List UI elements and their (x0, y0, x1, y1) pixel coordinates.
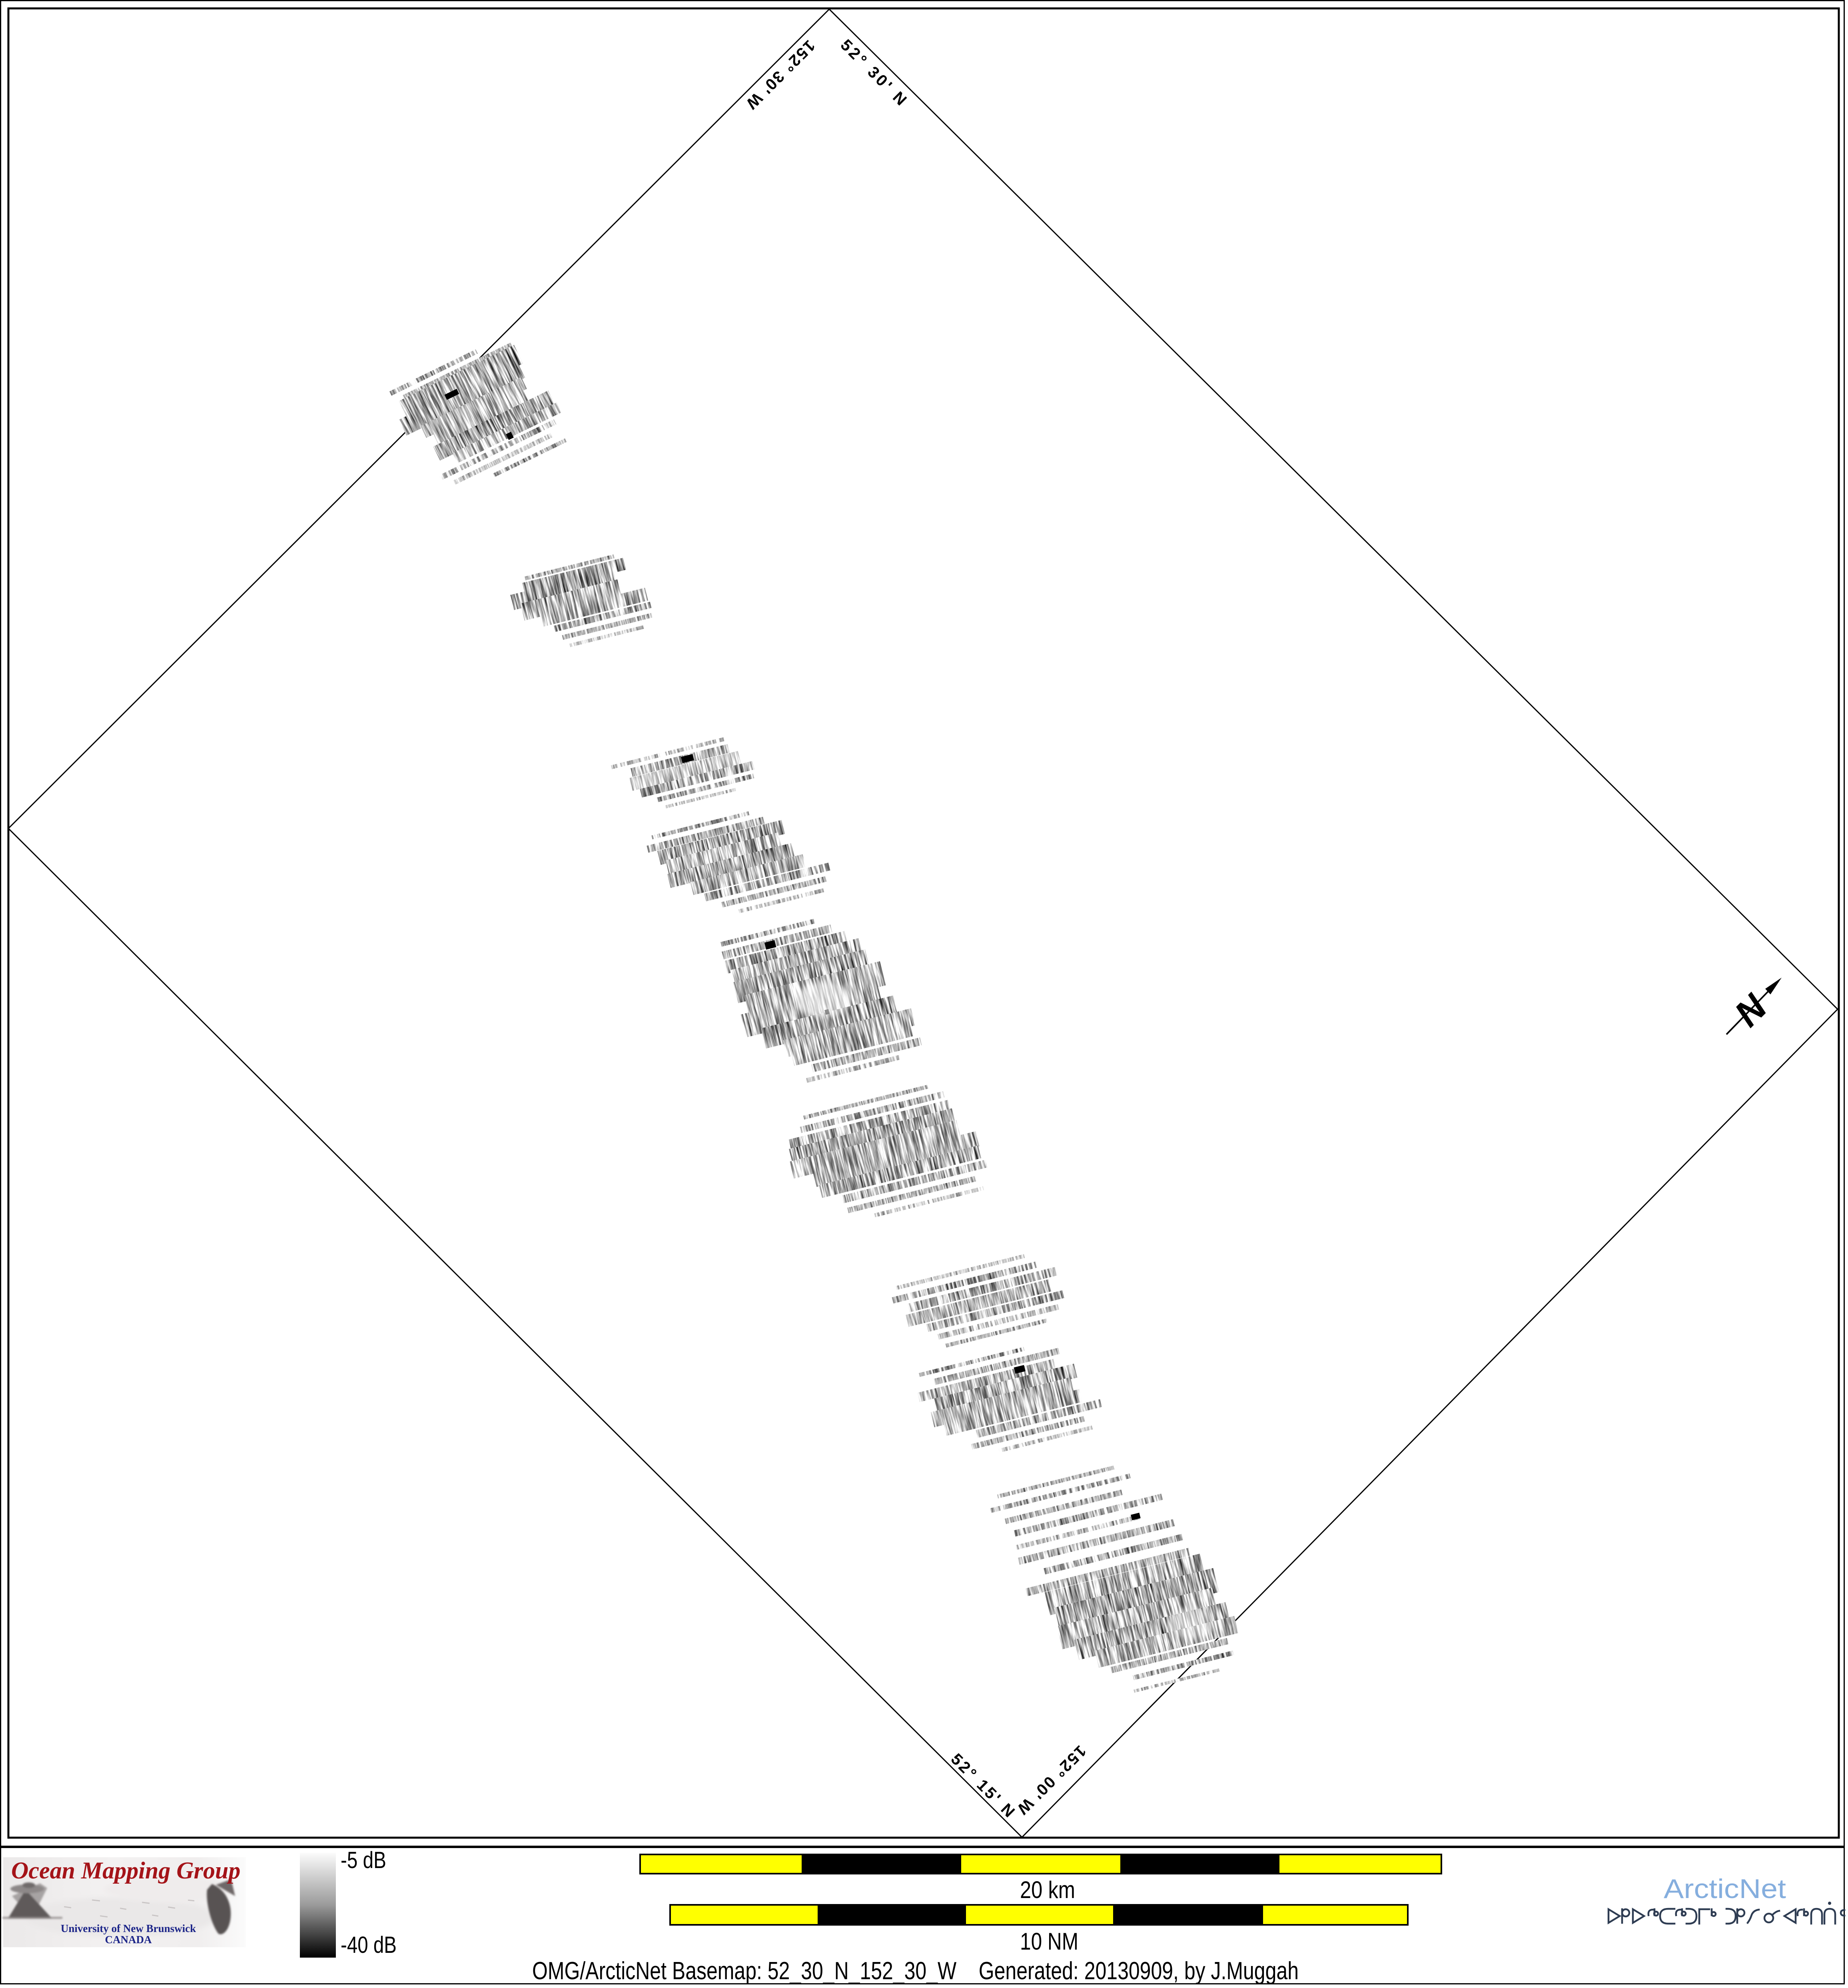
svg-text:CANADA: CANADA (105, 1934, 152, 1946)
svg-text:20 km: 20 km (1020, 1876, 1075, 1903)
svg-text:10 NM: 10 NM (1020, 1928, 1078, 1955)
svg-text:-5 dB: -5 dB (341, 1847, 386, 1873)
svg-text:ArcticNet: ArcticNet (1664, 1874, 1786, 1904)
svg-text:OMG/ArcticNet Basemap: 52_30_N: OMG/ArcticNet Basemap: 52_30_N_152_30_W … (532, 1957, 1299, 1985)
svg-text:Ocean Mapping Group: Ocean Mapping Group (11, 1857, 240, 1884)
svg-text:University of New Brunswick: University of New Brunswick (61, 1922, 196, 1934)
svg-text:-40 dB: -40 dB (341, 1932, 397, 1958)
